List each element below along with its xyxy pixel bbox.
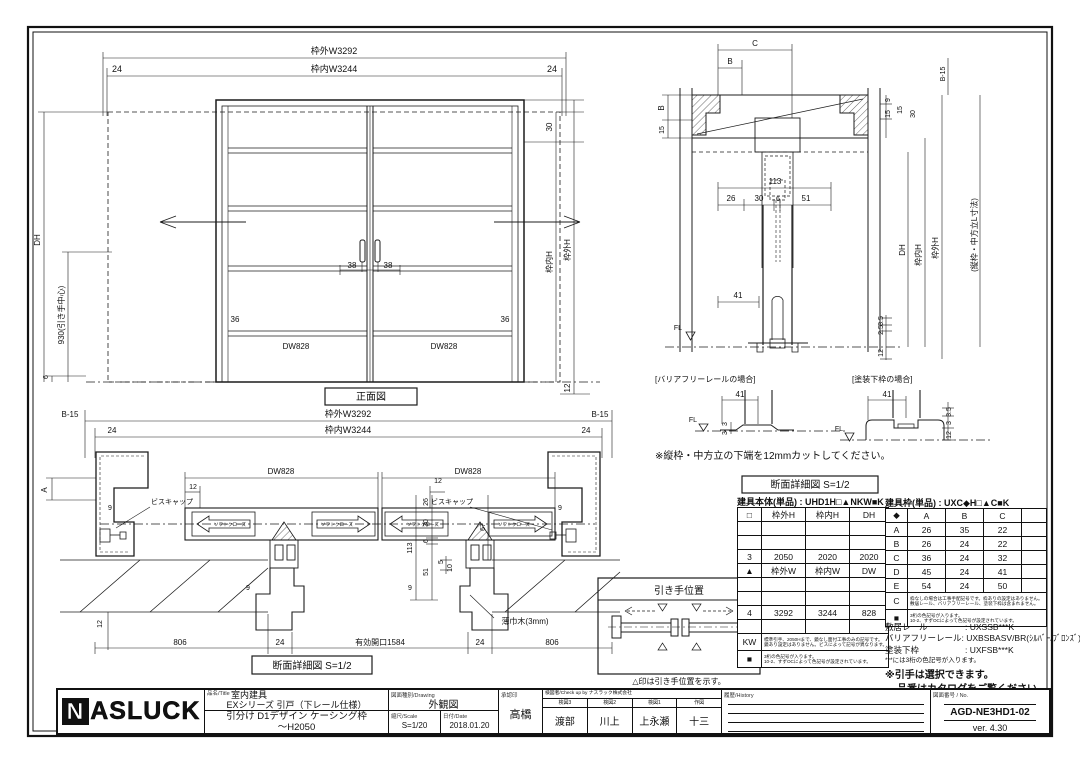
rail-detail-labels: [バリアフリーレールの場合] [塗装下枠の場合] 41 3 3 FL 41 3.… (655, 374, 953, 491)
title-block: NASLUCK 品名/Title 室内建具 EXシリーズ 引戸（下レール仕様） … (56, 688, 1051, 735)
title-label: 品名/Title (207, 691, 230, 697)
plan-section-view (46, 410, 620, 674)
svg-text:15: 15 (897, 106, 904, 114)
checker-col: 検図3 渡部 (543, 699, 588, 733)
svg-text:41: 41 (883, 390, 892, 399)
painted-sill-product-line: 塗装下枠: UXFSB***K (885, 645, 1055, 656)
svg-text:DW828: DW828 (455, 467, 482, 476)
cell: 36 (908, 551, 946, 565)
svg-text:41: 41 (734, 291, 743, 300)
company-logo: NASLUCK (58, 690, 205, 733)
svg-text:枠内H: 枠内H (913, 244, 923, 266)
svg-text:枠内W3244: 枠内W3244 (311, 63, 358, 74)
date-cell: 日付/Date 2018.01.20 (441, 711, 498, 733)
handle-select-note: ※引手は選択できます。 (885, 669, 1055, 683)
svg-text:[バリアフリーレールの場合]: [バリアフリーレールの場合] (655, 374, 755, 384)
cell: KW (738, 634, 762, 651)
cell: 3292 (762, 606, 806, 620)
svg-text:12: 12 (946, 431, 953, 439)
svg-text:[塗装下枠の場合]: [塗装下枠の場合] (852, 374, 912, 384)
svg-text:12: 12 (189, 484, 197, 491)
cell: DH (850, 508, 889, 522)
svg-text:B: B (657, 105, 666, 110)
svg-text:枠外H: 枠外H (930, 237, 940, 259)
svg-text:3: 3 (722, 431, 729, 435)
door-frame-table: ◆ A B C A 26 35 22 B 26 24 22 C 36 24 32… (885, 508, 1047, 627)
table-note: 3桁の色記号が入ります。10-2、すずOCによって色記号が設定されています。 (762, 651, 889, 668)
cell: 枠外W (762, 564, 806, 578)
cell: ▲ (738, 564, 762, 578)
svg-text:ソフトクローズ: ソフトクローズ (321, 521, 353, 528)
svg-text:36: 36 (231, 315, 240, 324)
cell: 32 (984, 551, 1022, 565)
door-body-table: □ 枠外H 枠内H DH 3 2050 2020 2020 ▲ 枠外W 枠内W … (737, 507, 889, 668)
table-note: 枠なしの場合は工事手配記号です。枠ありの設定はありません。敷居レール、バリアフリ… (908, 593, 1047, 610)
cell: 24 (946, 551, 984, 565)
svg-text:30: 30 (545, 122, 554, 131)
checker-col: 検図2 川上 (588, 699, 633, 733)
svg-text:24: 24 (108, 426, 117, 435)
svg-text:51: 51 (423, 568, 430, 576)
svg-text:2.5: 2.5 (878, 325, 885, 335)
screw-cap-label: ビスキャップ (151, 497, 193, 506)
cell: 22 (984, 523, 1022, 537)
fl-level-marker: FL (674, 325, 682, 332)
fl-level-marker: FL (689, 417, 697, 424)
cell: C (886, 593, 908, 610)
svg-text:9: 9 (246, 585, 250, 592)
product-name-line2: EXシリーズ 引戸（下レール仕様） (205, 701, 388, 711)
vertical-section-labels: C B B 15 9 15 15 30 113 26 30 6 51 41 3.… (657, 39, 979, 357)
svg-text:113: 113 (407, 542, 414, 553)
cell: 50 (984, 579, 1022, 593)
svg-text:枠外W3292: 枠外W3292 (311, 45, 358, 56)
front-view-caption: 正面図 (356, 391, 386, 403)
scale-cell: 縮尺/Scale S=1/20 (389, 711, 441, 733)
svg-text:B-15: B-15 (940, 67, 947, 82)
svg-text:枠内H: 枠内H (544, 251, 554, 273)
svg-text:41: 41 (736, 390, 745, 399)
cell: 2050 (762, 550, 806, 564)
cell: ■ (738, 651, 762, 668)
svg-text:38: 38 (384, 261, 393, 270)
svg-text:6: 6 (423, 539, 430, 543)
svg-text:DH: DH (33, 234, 42, 246)
svg-text:3: 3 (722, 422, 729, 426)
svg-text:36: 36 (501, 315, 510, 324)
svg-text:枠外W3292: 枠外W3292 (325, 408, 372, 419)
svg-text:枠外H: 枠外H (562, 239, 572, 261)
cell: 枠外H (762, 508, 806, 522)
drawing-number: AGD-NE3HD1-02 (944, 704, 1035, 721)
check-header: 検図者/Check up by ナスラック株式会社 (543, 690, 721, 699)
color-code-note: ***には3桁の色記号が入ります。 (885, 657, 1055, 666)
cell: 26 (908, 537, 946, 551)
svg-text:ソフトクローズ: ソフトクローズ (498, 521, 530, 528)
svg-text:30: 30 (755, 194, 764, 203)
drawing-type-label: 図面種別/Drawing (391, 691, 435, 699)
cell: 26 (908, 523, 946, 537)
vertical-section-view (662, 44, 980, 360)
svg-text:26: 26 (423, 498, 430, 506)
approver-name: 高橋 (510, 709, 532, 721)
drawing-title-cell: 品名/Title 室内建具 EXシリーズ 引戸（下レール仕様） 引分け D1デザ… (205, 690, 389, 733)
handle-position-labels: 引き手位置 △印は引き手位置を示す。 (632, 584, 725, 686)
svg-text:24: 24 (476, 638, 485, 647)
svg-text:113: 113 (769, 177, 782, 186)
cell: DW (850, 564, 889, 578)
cell: 828 (850, 606, 889, 620)
cell: A (908, 509, 946, 523)
drawing-sheet: 枠外W3292 枠内W3244 24 24 30 枠内H 枠外H 12 DH 9… (0, 0, 1080, 763)
svg-text:12: 12 (434, 478, 442, 485)
checker-col: 作図 十三 (677, 699, 721, 733)
svg-text:(縦枠・中方立L寸法): (縦枠・中方立L寸法) (969, 198, 979, 272)
cell: □ (738, 508, 762, 522)
svg-text:806: 806 (173, 638, 187, 647)
cell: B (946, 509, 984, 523)
svg-text:24: 24 (276, 638, 285, 647)
cell: E (886, 579, 908, 593)
cell: C (984, 509, 1022, 523)
svg-text:12: 12 (97, 620, 104, 628)
svg-text:9: 9 (108, 505, 112, 512)
drawing-version: ver. 4.30 (931, 723, 1049, 733)
cell: C (886, 551, 908, 565)
cell: A (886, 523, 908, 537)
svg-text:6: 6 (43, 375, 50, 379)
cell: 枠内H (806, 508, 850, 522)
product-name-line4: ～H2050 (205, 723, 388, 734)
svg-text:3.5: 3.5 (878, 316, 885, 326)
svg-text:51: 51 (802, 194, 811, 203)
svg-text:9: 9 (558, 505, 562, 512)
table-note: 標準引手、2050Hまで、鏡なし面付工事のみの記号です。鏡あり設定はありません。… (762, 634, 889, 651)
logo-n-icon: N (62, 698, 90, 725)
front-elevation-labels: 枠外W3292 枠内W3244 24 24 30 枠内H 枠外H 12 DH 9… (33, 45, 572, 403)
cell: D (886, 565, 908, 579)
svg-text:26: 26 (727, 194, 736, 203)
cell: 41 (984, 565, 1022, 579)
svg-text:806: 806 (545, 638, 559, 647)
skirting-label: 薄巾木(3mm) (501, 616, 548, 626)
history-cell: 履歴/History (722, 690, 931, 733)
svg-text:DW828: DW828 (283, 342, 310, 351)
cell (1022, 509, 1047, 523)
svg-text:12: 12 (563, 383, 572, 392)
svg-text:15: 15 (885, 110, 892, 118)
rail-product-line: 敷居レール: UXSSB***K (885, 622, 1055, 633)
cell: B (886, 537, 908, 551)
svg-text:67: 67 (480, 523, 487, 531)
cell: 45 (908, 565, 946, 579)
svg-text:DW828: DW828 (268, 467, 295, 476)
svg-text:B-15: B-15 (62, 410, 79, 419)
svg-text:ソフトクローズ: ソフトクローズ (407, 521, 439, 528)
rail-detail-views (695, 390, 990, 493)
approval-cell: 承認印 高橋 (499, 690, 543, 733)
front-elevation-view (38, 52, 600, 405)
cell: 22 (984, 537, 1022, 551)
svg-text:DW828: DW828 (431, 342, 458, 351)
scale-value: S=1/20 (402, 721, 428, 730)
svg-text:6: 6 (776, 196, 780, 203)
cell: 枠内W (806, 564, 850, 578)
svg-text:3: 3 (946, 421, 953, 425)
barrier-free-rail-product-line: バリアフリーレール: UXBSBASV/BR(ｼﾙﾊﾞｰ/ﾌﾞﾛﾝｽﾞ) (885, 633, 1055, 644)
svg-text:3.5: 3.5 (946, 407, 953, 417)
cell: ◆ (886, 509, 908, 523)
svg-text:A: A (40, 487, 49, 493)
svg-text:枠内W3244: 枠内W3244 (325, 424, 372, 435)
cut-note: ※縦枠・中方立の下端を12mmカットしてください。 (655, 449, 891, 462)
handle-position-caption: △印は引き手位置を示す。 (632, 676, 725, 686)
svg-text:38: 38 (348, 261, 357, 270)
svg-text:30: 30 (910, 110, 917, 118)
svg-text:有効開口1584: 有効開口1584 (355, 637, 405, 647)
fl-level-marker: FL (835, 426, 843, 433)
svg-text:9: 9 (408, 585, 412, 592)
svg-text:12: 12 (878, 349, 885, 357)
cell: 2020 (806, 550, 850, 564)
cell: 24 (946, 579, 984, 593)
section-caption: 断面詳細図 S=1/2 (770, 478, 850, 491)
cell: 24 (946, 565, 984, 579)
cell: 3244 (806, 606, 850, 620)
cell: 2020 (850, 550, 889, 564)
drawing-type-value: 外観図 (429, 700, 459, 711)
svg-text:DH: DH (898, 244, 907, 256)
cell: 35 (946, 523, 984, 537)
checkers-cell: 検図者/Check up by ナスラック株式会社 検図3 渡部 検図2 川上 … (543, 690, 722, 733)
svg-text:C: C (752, 39, 758, 48)
svg-text:ソフトクローズ: ソフトクローズ (214, 521, 246, 528)
svg-text:930(引き手中心): 930(引き手中心) (56, 285, 66, 344)
svg-text:引き手位置: 引き手位置 (654, 584, 704, 597)
cell: 54 (908, 579, 946, 593)
cell: 4 (738, 606, 762, 620)
svg-text:24: 24 (547, 64, 557, 74)
svg-text:10: 10 (447, 564, 454, 572)
checker-col: 検図1 上永瀬 (633, 699, 678, 733)
screw-cap-label: ビスキャップ (431, 497, 473, 506)
svg-text:B-15: B-15 (592, 410, 609, 419)
svg-text:15: 15 (659, 126, 666, 134)
cell: 3 (738, 550, 762, 564)
date-value: 2018.01.20 (449, 721, 489, 730)
svg-text:24: 24 (582, 426, 591, 435)
svg-text:24: 24 (112, 64, 122, 74)
plan-caption: 断面詳細図 S=1/2 (272, 659, 352, 672)
drawing-type-cell: 図面種別/Drawing 外観図 縮尺/Scale S=1/20 日付/Date… (389, 690, 499, 733)
svg-text:9: 9 (885, 98, 892, 102)
cell: 24 (946, 537, 984, 551)
drawing-number-cell: 図面番号 / No. AGD-NE3HD1-02 ver. 4.30 (931, 690, 1049, 733)
svg-text:B: B (727, 57, 732, 66)
product-code-list: 敷居レール: UXSSB***K バリアフリーレール: UXBSBASV/BR(… (885, 622, 1055, 696)
svg-text:5: 5 (438, 560, 445, 564)
